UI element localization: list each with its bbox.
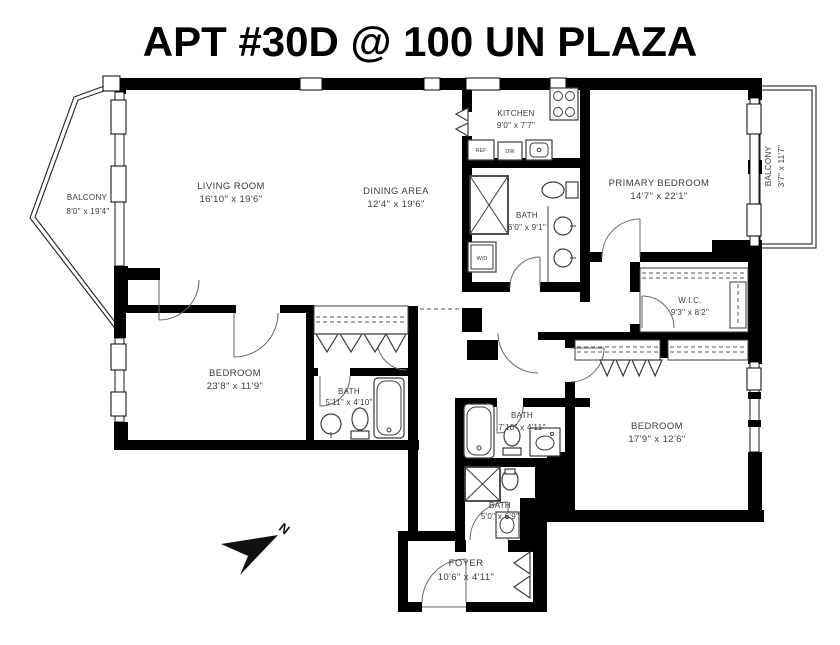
dishwasher-label: DW <box>505 149 515 155</box>
primary-bath-dims: 6'0" x 9'1" <box>508 223 546 232</box>
page-title: APT #30D @ 100 UN PLAZA <box>143 18 697 65</box>
refrigerator-label: REF <box>476 148 488 154</box>
dining-area-dims: 12'4" x 19'6" <box>367 199 424 210</box>
wic-dims: 9'3" x 8'2" <box>671 308 709 317</box>
wic-label: W.I.C. <box>678 296 702 305</box>
toilet-primary <box>542 182 578 198</box>
washer-dryer-label: W/D <box>477 256 488 262</box>
shower-stall-lower <box>465 467 500 501</box>
foyer-dims: 10'6" x 4'11" <box>438 572 495 583</box>
balcony-right-label: BALCONY <box>764 145 773 186</box>
floor-plan: APT #30D @ 100 UN PLAZA <box>0 0 840 645</box>
primary-bedroom-label: PRIMARY BEDROOM <box>609 178 710 189</box>
stove <box>550 88 578 120</box>
bath-lower-label: BATH <box>489 501 511 510</box>
living-room-dims: 16'10" x 19'6" <box>200 194 263 205</box>
bedroom-right-label: BEDROOM <box>631 421 683 432</box>
bath-center-label: BATH <box>511 411 533 420</box>
floor-plan-svg: APT #30D @ 100 UN PLAZA <box>0 0 840 645</box>
bedroom-right-dims: 17'9" x 12'6" <box>628 434 685 445</box>
kitchen-label: KITCHEN <box>497 109 534 118</box>
kitchen-sink <box>526 140 552 160</box>
bath-left-label: BATH <box>338 387 360 396</box>
sink-left-bath <box>321 414 341 438</box>
primary-bath-label: BATH <box>516 211 538 220</box>
shower-stall-primary <box>470 176 508 234</box>
toilet-lower-bath <box>502 469 518 490</box>
bathtub-center <box>464 404 494 458</box>
balcony-right-dims: 3'7" x 11'7" <box>777 145 786 187</box>
north-label: N <box>276 520 293 538</box>
bedroom-left-dims: 23'8" x 11'9" <box>207 381 264 392</box>
primary-bedroom-dims: 14'7" x 22'1" <box>630 191 687 202</box>
balcony-left-dims: 8'0" x 19'4" <box>66 207 109 216</box>
foyer-label: FOYER <box>449 558 484 569</box>
balcony-left-label: BALCONY <box>67 193 108 202</box>
windows-layer <box>103 76 761 452</box>
north-arrow: N <box>221 520 293 575</box>
walls-layer <box>114 78 764 612</box>
bath-left-dims: 5'11" x 4'10" <box>325 398 372 407</box>
toilet-left-bath <box>351 408 369 439</box>
kitchen-dims: 9'0" x 7'7" <box>497 121 535 130</box>
living-room-label: LIVING ROOM <box>197 181 265 192</box>
dining-area-label: DINING AREA <box>363 186 429 197</box>
bath-lower-dims: 5'0" x 6'9" <box>481 512 519 521</box>
bedroom-left-label: BEDROOM <box>209 368 261 379</box>
bath-center-dims: 7'10" x 4'11" <box>498 423 545 432</box>
vanity-sinks-primary <box>548 206 576 282</box>
vanity-center-bath <box>530 428 560 456</box>
bathtub-left <box>374 378 404 438</box>
